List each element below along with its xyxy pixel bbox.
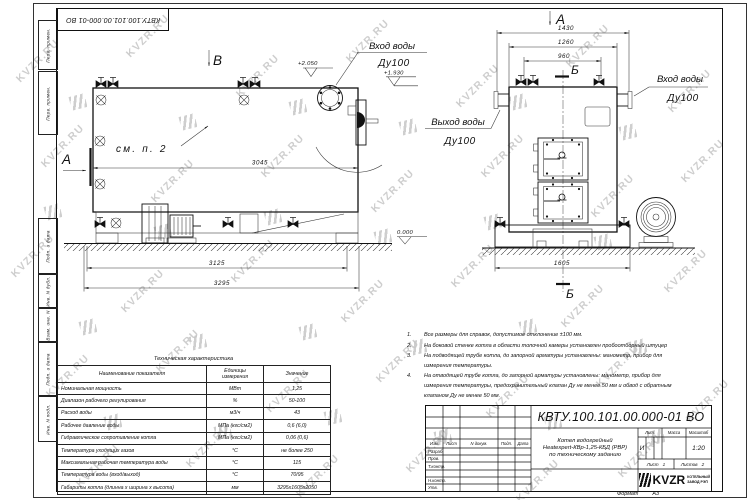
dim-960: 960	[558, 53, 570, 60]
table-row: Номинальная мощность МВт 1,25	[58, 383, 331, 395]
margin-cell-vzam-inv: Взам. инв. N	[38, 308, 58, 342]
section-b-top-label: Б	[571, 63, 579, 77]
side-view: В А см. п. 2 Вход воды Ду100 +2.050	[61, 41, 427, 292]
col-list: Лист	[443, 439, 460, 448]
dimensions-front: 1430 1260 960 1605	[495, 25, 630, 272]
massa-label: Масса	[662, 428, 686, 437]
lower-door	[534, 182, 589, 223]
param-units: МВт	[207, 383, 264, 395]
inlet-callout-side: Вход воды Ду100	[336, 41, 427, 85]
pipe-port-icon	[111, 218, 121, 228]
section-b-bottom-marker: Б	[556, 284, 574, 301]
outlet-callout-front: Выход воды Ду100	[425, 110, 500, 147]
lit-label: Лит.	[638, 428, 662, 437]
param-name: Гидравлическое сопротивление котла	[58, 432, 207, 444]
note-text: На подводящей трубе котла, до запорной а…	[424, 352, 683, 371]
inlet-water-label: Вход воды	[657, 74, 703, 85]
outlet-water-label: Выход воды	[431, 117, 484, 128]
param-name: Расход воды	[58, 407, 207, 419]
margin-label: Перв. примен.	[46, 28, 51, 62]
drawing-sheet: KVZR.RUKVZR.RUKVZR.RUKVZR.RUKVZR.RUKVZR.…	[0, 0, 750, 500]
table-row: Расход воды м3/ч 43	[58, 407, 331, 419]
outlet-size-label: Ду100	[443, 136, 475, 147]
note-text: На боковой стенке котла в области топочн…	[424, 342, 683, 352]
dim-3125: 3125	[209, 260, 225, 267]
param-name: Рабочее давление воды	[58, 420, 207, 432]
elevation-nozzle-label: +1.930	[384, 71, 404, 77]
pipe-port-icon	[239, 95, 249, 105]
sheets-value: 2	[702, 462, 705, 467]
top-reference-box: КВТУ.100.101.00.000-01 ВО	[57, 8, 169, 31]
role-tkontr: Т.контр.	[426, 462, 462, 470]
param-name: Максимальная рабочая температура воды	[58, 457, 207, 469]
table-row: Рабочее давление воды МПа (кгс/см2) 0,6 …	[58, 420, 331, 432]
col-data: Дата	[515, 439, 531, 448]
valve-icon	[108, 78, 118, 88]
param-value: 3295х1605х2050	[264, 482, 331, 494]
format-strip: Формат А3	[617, 491, 659, 497]
notes-block: 1. Все размеры для справок, допустимое о…	[407, 331, 683, 402]
format-label: Формат	[617, 491, 638, 497]
pipe-port-icon	[95, 179, 105, 189]
param-value: 43	[264, 407, 331, 419]
param-units: %	[207, 395, 264, 407]
dim-1605: 1605	[554, 260, 570, 267]
door-handle-icon	[558, 194, 567, 200]
param-units: °С	[207, 457, 264, 469]
inlet-nozzle	[617, 92, 632, 109]
role-nkontr: Н.контр.	[426, 477, 462, 484]
scale-value: 1:20	[686, 437, 711, 459]
valve-icon	[495, 218, 505, 228]
dim-1430: 1430	[558, 25, 574, 32]
format-value: А3	[652, 491, 659, 497]
sheet-value: 1	[663, 462, 666, 467]
col-podp: Подп.	[498, 439, 515, 448]
note-text: Все размеры для справок, допустимое откл…	[424, 331, 683, 341]
inlet-size-label: Ду100	[666, 93, 698, 104]
col-header: Наименование показателя	[58, 366, 207, 383]
dim-3045: 3045	[252, 160, 268, 167]
note-item: 2. На боковой стенке котла в области топ…	[407, 342, 683, 352]
scale-label: Масштаб	[686, 428, 711, 437]
param-value: 70/95	[264, 469, 331, 481]
view-b-marker: В	[209, 50, 222, 68]
valve-icon	[288, 218, 298, 228]
col-header: Единицы измерения	[207, 366, 264, 383]
margin-label: Инв. N подл.	[46, 404, 51, 434]
elevation-nozzle: +1.930	[384, 71, 418, 86]
param-value: 0,6 (6,0)	[264, 420, 331, 432]
sheet-cell: Лист 1	[638, 459, 674, 469]
outlet-nozzle	[494, 92, 509, 109]
pipe-port-icon	[95, 136, 105, 146]
col-ndoc: N докум.	[460, 439, 498, 448]
margin-cell-inv-dubl: Инв. N дубл.	[38, 274, 58, 308]
dim-1260: 1260	[558, 39, 574, 46]
section-b-bottom-label: Б	[566, 287, 574, 301]
valve-icon	[594, 76, 604, 86]
param-units: МПа (кгс/см2)	[207, 432, 264, 444]
valve-icon	[528, 76, 538, 86]
company-logo-row: KVZR КОТЕЛЬНЫЙ ЗАВОД РЭП	[639, 469, 710, 490]
valve-icon	[95, 218, 105, 228]
table-row: Температура уходящих газов °С не более 2…	[58, 444, 331, 456]
door-handle-icon	[558, 152, 567, 158]
margin-label: Взам. инв. N	[46, 310, 51, 340]
dimensions-side: 3045 3125 3295	[84, 160, 359, 292]
margin-label: Инв. N дубл.	[46, 276, 51, 306]
top-reference-number: КВТУ.100.101.00.000-01 ВО	[66, 16, 160, 23]
title-block: Изм. Лист N докум. Подп. Дата Разраб. Пр…	[425, 405, 712, 492]
valve-icon	[619, 218, 629, 228]
brand-subtitle: КОТЕЛЬНЫЙ ЗАВОД РЭП	[687, 475, 710, 483]
dim-3295: 3295	[214, 280, 230, 287]
param-units: °С	[207, 444, 264, 456]
col-header: Значение	[264, 366, 331, 383]
sight-glass	[585, 107, 610, 126]
note-number: 4.	[407, 372, 424, 401]
param-name: Температура уходящих газов	[58, 444, 207, 456]
table-row: Температура воды (вход/выход) °С 70/95	[58, 469, 331, 481]
valve-icon	[223, 218, 233, 228]
table-row: Гидравлическое сопротивление котла МПа (…	[58, 432, 331, 444]
brand-sub-line: ЗАВОД РЭП	[687, 480, 710, 484]
note-item: 1. Все размеры для справок, допустимое о…	[407, 331, 683, 341]
upper-door	[534, 138, 589, 180]
valve-icon	[250, 78, 260, 88]
front-view: А Б Б 1430 1260 960	[425, 11, 708, 301]
note-number: 3.	[407, 352, 424, 371]
param-units: мм	[207, 482, 264, 494]
sheets-label: Листов	[681, 462, 698, 467]
elevation-zero-label: 0.000	[397, 230, 413, 236]
brand-name: KVZR	[653, 473, 686, 487]
param-name: Номинальная мощность	[58, 383, 207, 395]
title-line: Котел водогрейный	[557, 438, 612, 445]
param-units: м3/ч	[207, 407, 264, 419]
margin-cell-podp-data-2: Подп. и дата	[38, 342, 58, 396]
note-item: 4. На отводящей трубе котла, до запорной…	[407, 372, 683, 401]
title-line: по техническому заданию	[549, 452, 621, 459]
param-value: 0,06 (0,6)	[264, 432, 331, 444]
margin-cell-inv-podl: Инв. N подл.	[38, 396, 58, 442]
valve-icon	[238, 78, 248, 88]
sheet-label: Лист	[647, 462, 659, 467]
margin-cell-podp-data-1: Подп. и дата	[38, 218, 58, 274]
col-izm: Изм.	[426, 439, 443, 448]
section-b-top-marker: Б	[555, 63, 579, 77]
inlet-flange	[318, 86, 343, 111]
role-razrab: Разраб.	[426, 448, 462, 455]
param-name: Диапазон рабочего регулирования	[58, 395, 207, 407]
margin-cell-perv-primen-2: Перв. примен.	[38, 71, 58, 135]
spec-table-block: Техническая характеристика Наименование …	[57, 356, 330, 495]
note-number: 1.	[407, 331, 424, 341]
support-frame-front	[495, 225, 630, 247]
table-row: Габариты котла (длинна х ширина х высота…	[58, 482, 331, 494]
role-utv: Утв.	[426, 484, 462, 491]
param-units: МПа (кгс/см2)	[207, 420, 264, 432]
elevation-top-label: +2.050	[298, 61, 318, 67]
document-number: КВТУ.100.101.00.000-01 ВО	[532, 406, 710, 428]
inlet-size-label: Ду100	[377, 58, 409, 69]
section-a-label: А	[61, 152, 71, 167]
margin-label: Подп. и дата	[46, 230, 51, 262]
param-name: Температура воды (вход/выход)	[58, 469, 207, 481]
document-title: Котел водогрейный Heatexpert-КВр-1,25-КБ…	[532, 429, 638, 468]
see-note-callout: см. п. 2	[116, 126, 208, 155]
ground-hatch	[482, 249, 695, 256]
title-line: Heatexpert-КВр-1,25-КБД (РВР)	[543, 445, 627, 452]
note-item: 3. На подводящей трубе котла, до запорно…	[407, 352, 683, 371]
note-text: На отводящей трубе котла, до запорной ар…	[424, 372, 683, 401]
margin-label: Подп. и дата	[46, 353, 51, 385]
furnace-door-profile	[316, 100, 382, 172]
elevation-zero: 0.000	[397, 230, 427, 244]
spec-table-title: Техническая характеристика	[57, 356, 330, 362]
table-header-row: Наименование показателя Единицы измерени…	[58, 366, 331, 383]
param-value: 115	[264, 457, 331, 469]
lit-value: И	[638, 437, 646, 459]
valve-icon	[96, 78, 106, 88]
param-units: °С	[207, 469, 264, 481]
margin-cell-perv-primen-1: Перв. примен.	[38, 20, 58, 70]
table-row: Диапазон рабочего регулирования % 50-100	[58, 395, 331, 407]
inlet-water-label: Вход воды	[369, 41, 415, 52]
param-value: 1,25	[264, 383, 331, 395]
note-number: 2.	[407, 342, 424, 352]
elevation-top: +2.050	[298, 61, 333, 77]
param-value: не более 250	[264, 444, 331, 456]
view-b-label: В	[213, 53, 222, 68]
section-a-marker: А	[61, 148, 91, 186]
role-prov: Пров.	[426, 455, 462, 462]
param-value: 50-100	[264, 395, 331, 407]
spec-table: Наименование показателя Единицы измерени…	[57, 365, 331, 495]
support-frame-side	[96, 212, 358, 243]
pipe-port-icon	[96, 95, 106, 105]
kvzr-logo-icon	[639, 473, 651, 487]
blower-motor	[142, 204, 201, 243]
valve-icon	[516, 76, 526, 86]
table-row: Максимальная рабочая температура воды °С…	[58, 457, 331, 469]
ground-hatch	[64, 244, 392, 251]
draft-fan	[637, 198, 676, 248]
param-name: Габариты котла (длинна х ширина х высота…	[58, 482, 207, 494]
margin-label: Перв. примен.	[46, 86, 51, 120]
inlet-callout-front: Вход воды Ду100	[634, 74, 708, 104]
sheets-cell: Листов 2	[674, 459, 711, 469]
see-note-label: см. п. 2	[116, 144, 168, 155]
